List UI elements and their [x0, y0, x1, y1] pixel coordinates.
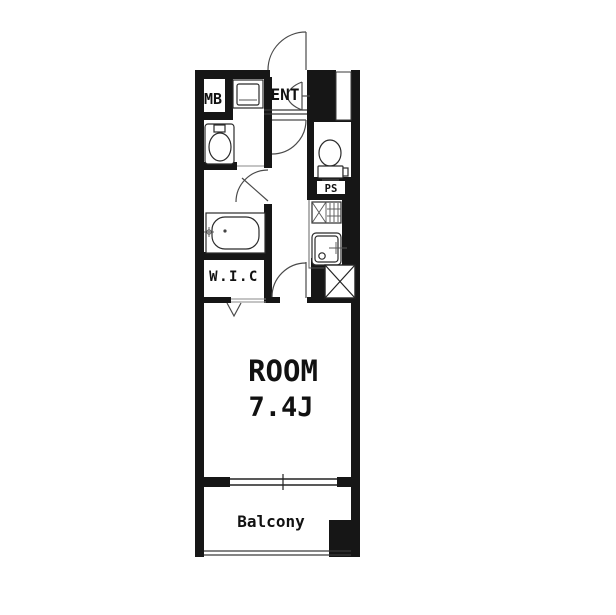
floor-plan-drawing: MB ENT PS W.I.C ROOM 7.4J Balcony	[0, 0, 616, 615]
wic-folding-door-icon	[227, 303, 241, 316]
gas-stove-icon	[312, 202, 341, 223]
balcony-label: Balcony	[237, 512, 305, 531]
mb-label: MB	[204, 90, 222, 108]
pipe-space-label: PS	[325, 183, 338, 195]
walk-in-closet-label: W.I.C	[209, 269, 259, 285]
toilet-icon	[318, 140, 348, 183]
floor-plan: MB ENT PS W.I.C ROOM 7.4J Balcony	[0, 0, 616, 615]
wall-room-bottom-left	[195, 477, 230, 487]
bathtub-drain	[223, 229, 226, 232]
room-size-label: 7.4J	[248, 392, 313, 423]
bath-door-icon	[236, 170, 268, 202]
balcony-rail	[204, 551, 351, 555]
wall-right	[351, 70, 360, 557]
washing-machine-pan-icon	[233, 80, 263, 108]
wall-block-right-of-entrance	[307, 70, 336, 120]
sliding-window-icon	[230, 474, 337, 490]
entrance-door-icon	[268, 32, 306, 70]
entrance-label: ENT	[271, 85, 300, 104]
kitchen-sink-icon	[312, 233, 347, 265]
room-label: ROOM	[248, 354, 318, 388]
shaft-strip	[336, 72, 351, 120]
wall-mb-bottom	[195, 112, 233, 120]
wall-toilet-left	[307, 115, 314, 180]
hall-door-icon	[272, 120, 306, 154]
bathtub-icon	[204, 213, 265, 253]
wall-room-bottom-right	[337, 477, 351, 487]
wall-kitchen-right	[342, 196, 351, 266]
wall-room-top-b	[266, 297, 280, 303]
washbasin-icon	[205, 124, 234, 164]
wall-room-top-a	[195, 297, 231, 303]
room-door-icon	[272, 262, 306, 298]
duct-shaft-box-icon	[325, 265, 355, 298]
